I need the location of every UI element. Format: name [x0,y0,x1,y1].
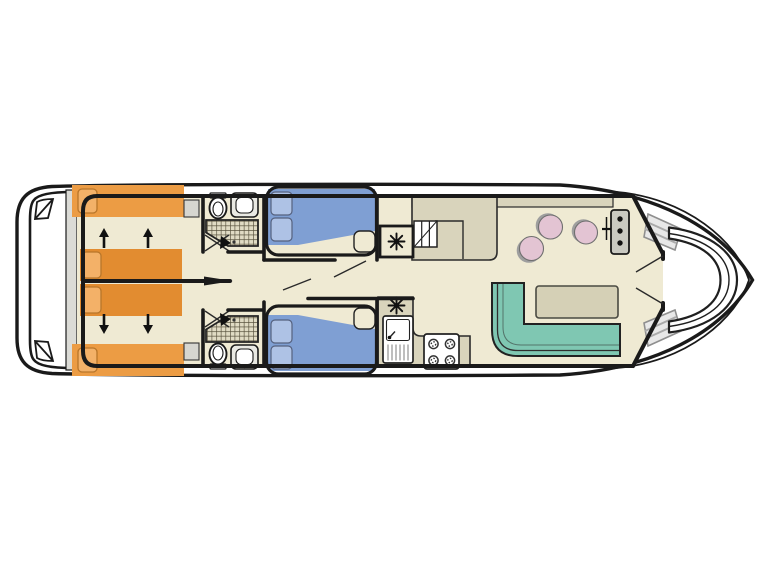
gauge [617,216,622,221]
pillow [271,320,292,343]
wardrobe-top [380,226,413,257]
saloon-table [536,286,618,318]
pillow [271,218,292,241]
shower-drain [232,240,235,243]
foot-seat [354,231,375,252]
heater-symbol-icon [389,234,405,250]
bedside-cabinet [184,200,199,217]
foot-seat [354,308,375,329]
shower-drain [232,318,235,321]
stool [539,215,563,239]
bedside-cabinet [184,343,199,360]
stool [575,221,598,244]
stool [520,237,544,261]
gauge [617,228,622,233]
gauge-dots [617,216,622,245]
galley-sink-icon [383,316,413,363]
companionway-steps [414,221,437,247]
floor-plan-page [0,0,768,576]
boat-floor-plan [0,0,768,576]
hob-icon [424,334,459,369]
gauge [617,240,622,245]
pillow [78,348,97,372]
